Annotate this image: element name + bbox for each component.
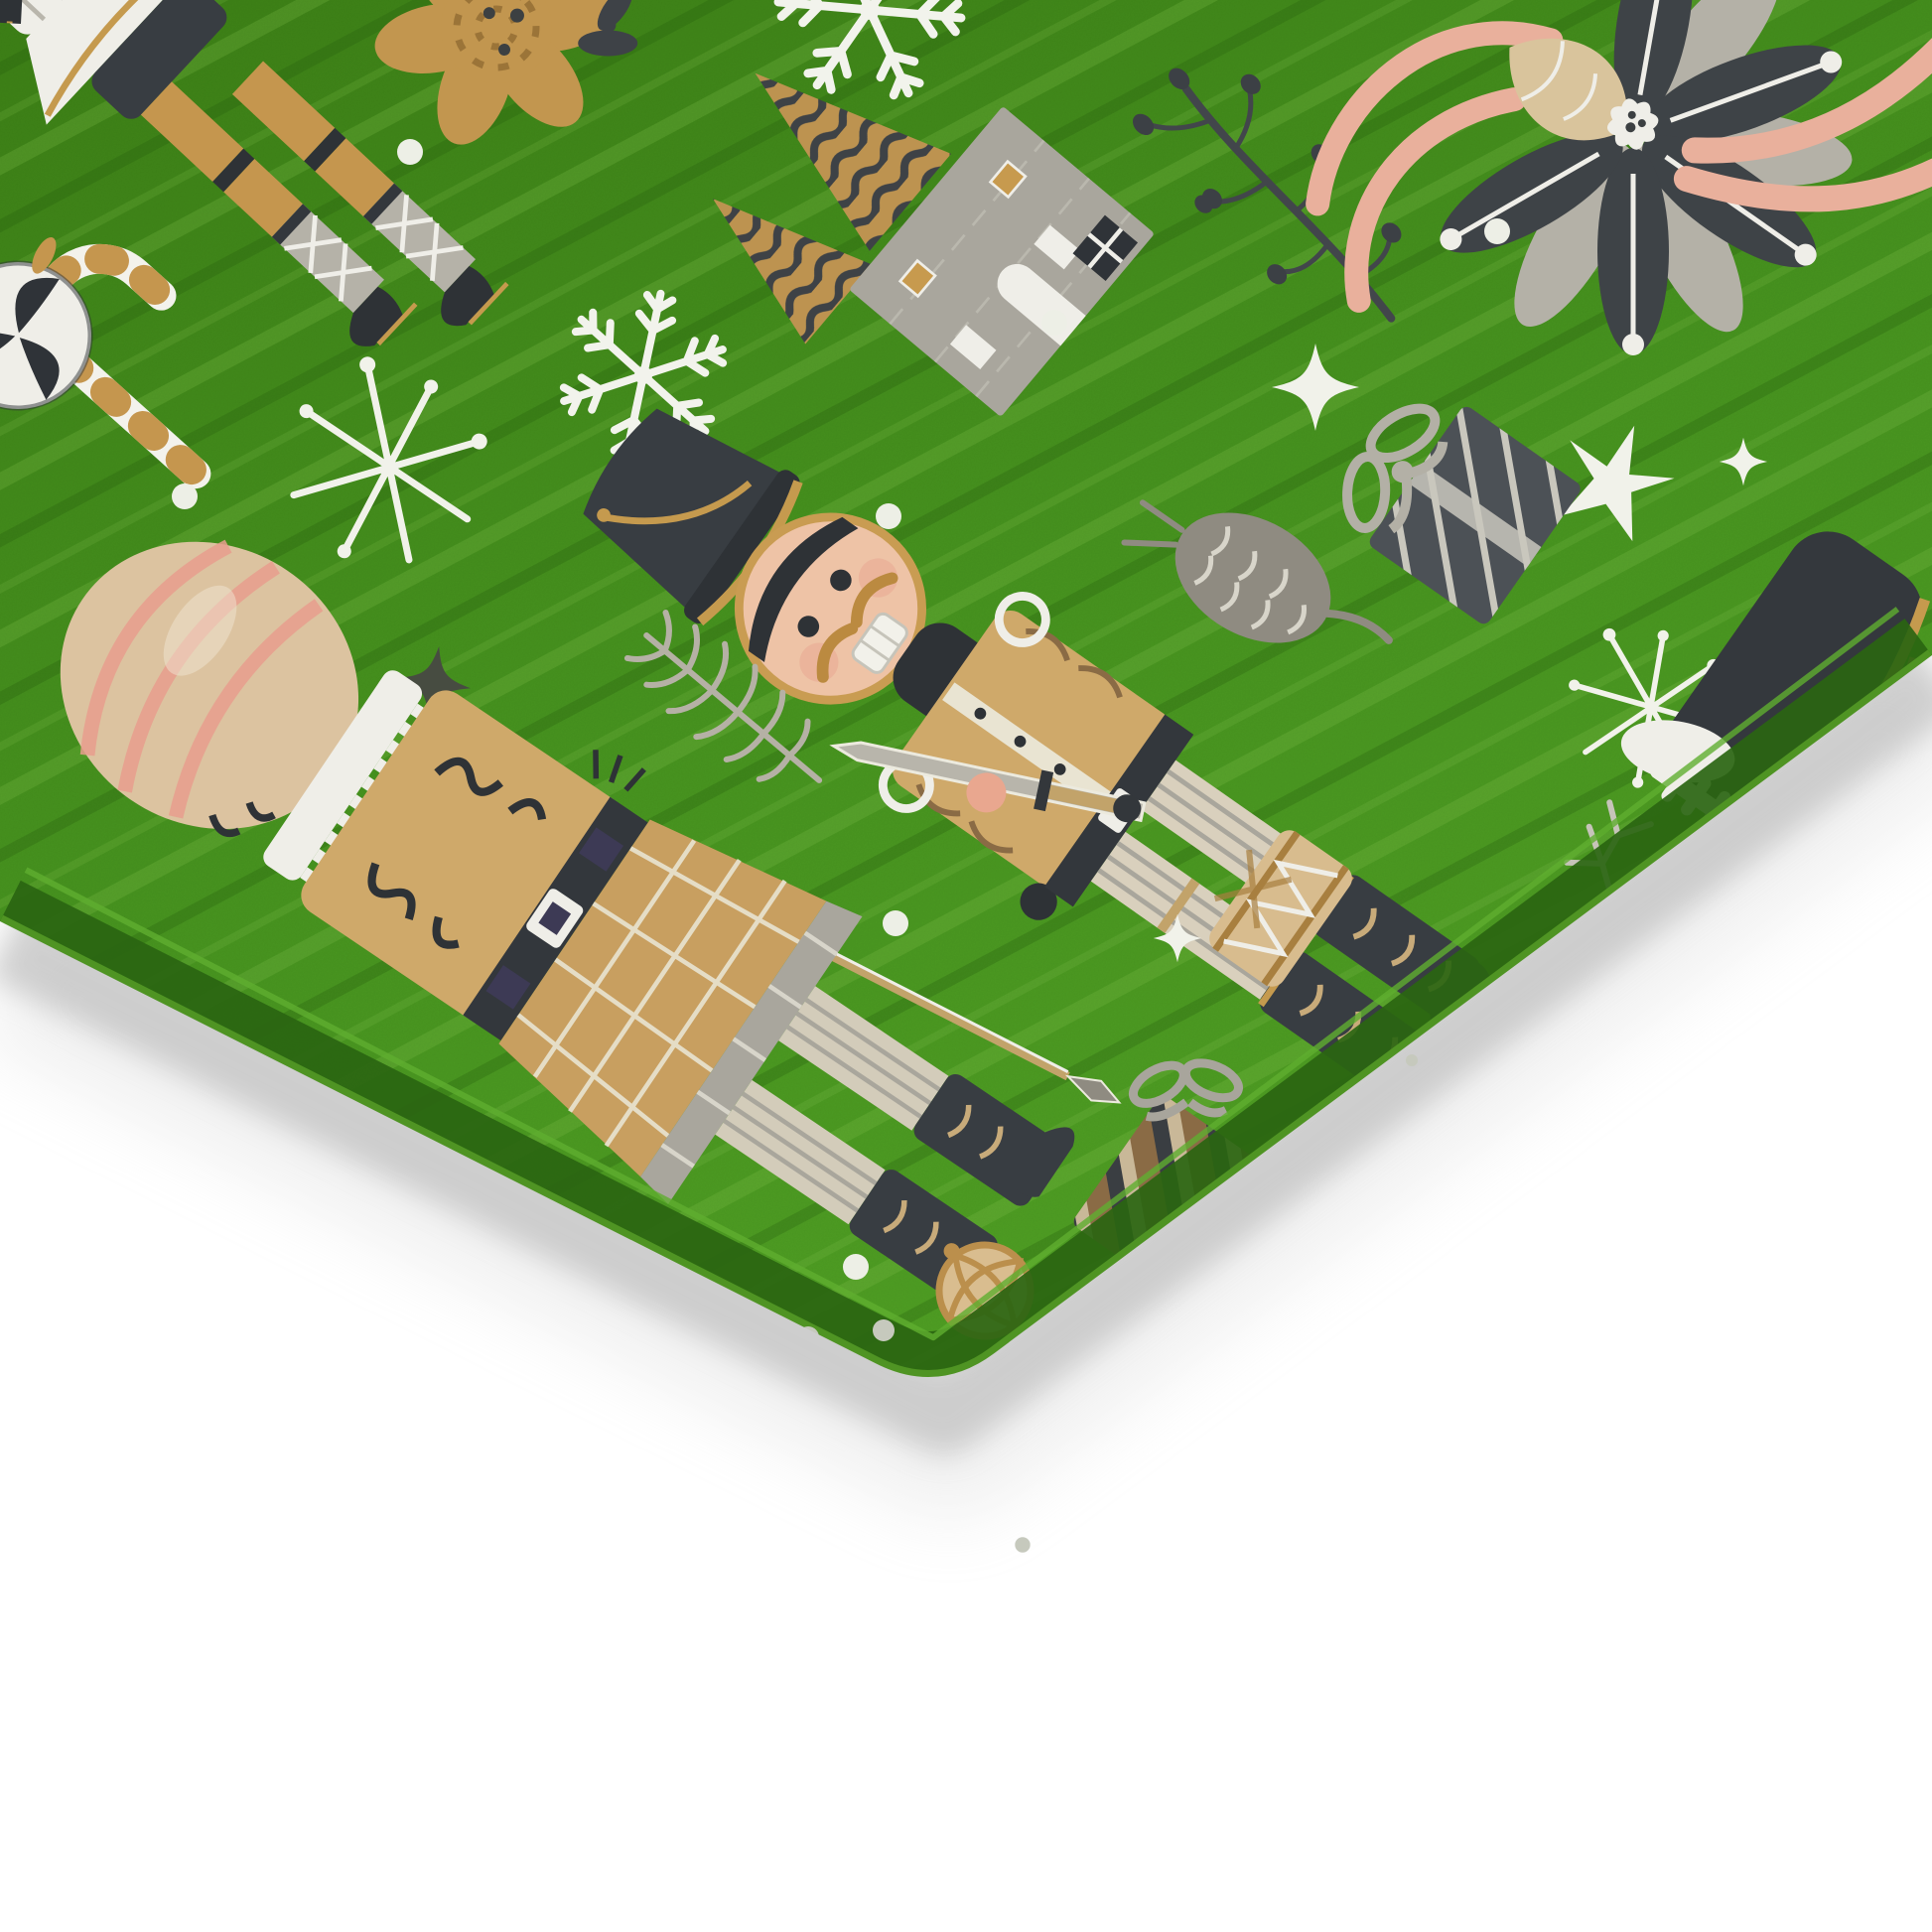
- motif-dot-grey: [1015, 1537, 1030, 1552]
- motif-dot: [397, 139, 423, 165]
- motif-dot-grey: [873, 1319, 895, 1341]
- motif-dot: [1041, 310, 1067, 336]
- motif-dot: [843, 1254, 869, 1280]
- motif-dot: [1484, 218, 1510, 244]
- motif-dot: [876, 503, 901, 529]
- product-photo-stage: Angled corner view of a green holiday ch…: [0, 0, 1932, 1932]
- motif-dot: [883, 910, 908, 936]
- motif-dot-grey: [1406, 1054, 1418, 1066]
- rug-photo-svg: Angled corner view of a green holiday ch…: [0, 0, 1932, 1932]
- motif-dot: [172, 483, 198, 509]
